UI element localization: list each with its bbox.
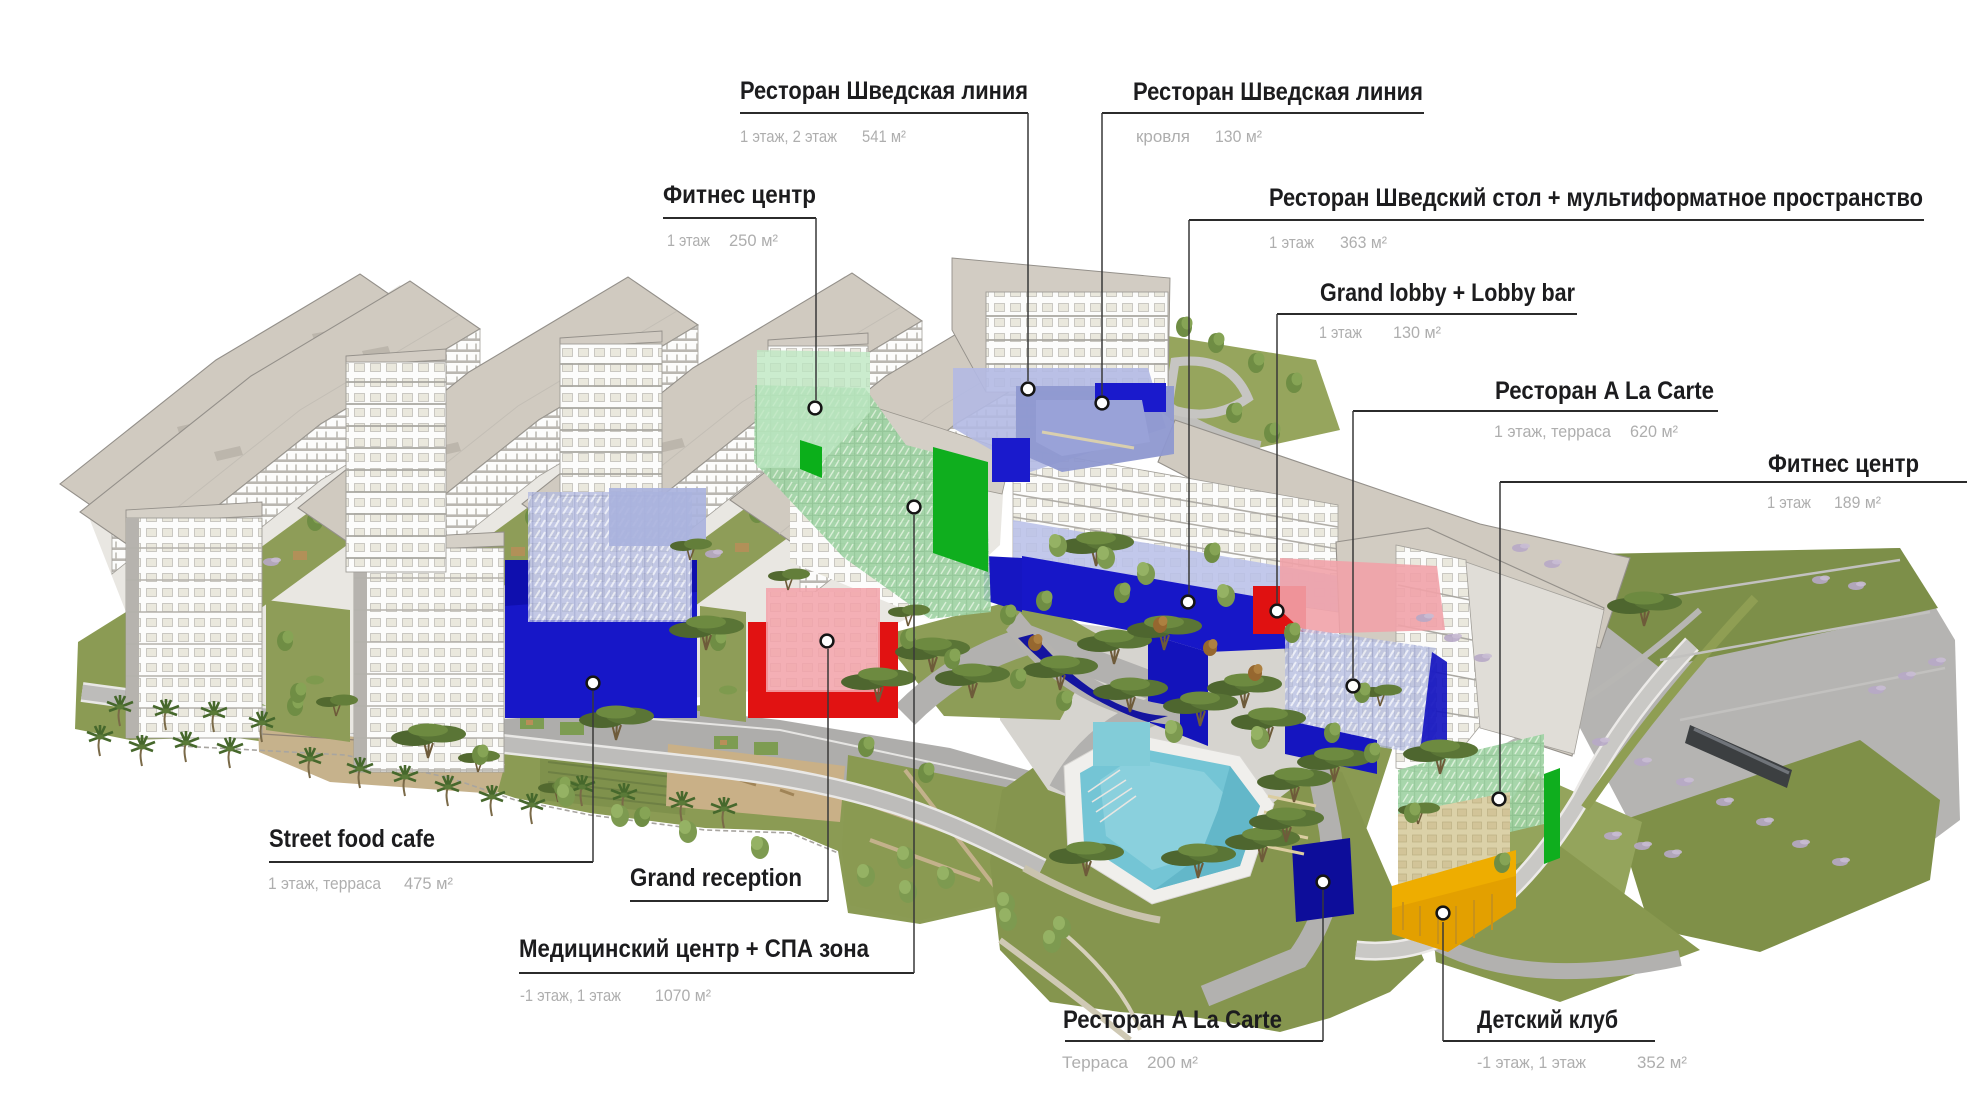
svg-text:1 этаж, терраса: 1 этаж, терраса <box>1494 423 1612 441</box>
svg-text:363 м²: 363 м² <box>1340 234 1387 252</box>
svg-text:1 этаж: 1 этаж <box>1767 494 1811 512</box>
svg-text:130 м²: 130 м² <box>1215 128 1262 146</box>
svg-text:Ресторан A La Carte: Ресторан A La Carte <box>1063 1006 1282 1034</box>
svg-text:1070 м²: 1070 м² <box>655 987 711 1005</box>
svg-text:кровля: кровля <box>1136 128 1190 146</box>
svg-text:Ресторан A La Carte: Ресторан A La Carte <box>1495 377 1714 405</box>
svg-text:Ресторан Шведская линия: Ресторан Шведская линия <box>1133 78 1423 106</box>
svg-text:Детский клуб: Детский клуб <box>1477 1006 1618 1034</box>
svg-text:-1 этаж, 1 этаж: -1 этаж, 1 этаж <box>1477 1054 1586 1072</box>
svg-text:Фитнес центр: Фитнес центр <box>663 181 816 209</box>
svg-text:620 м²: 620 м² <box>1630 423 1678 441</box>
svg-text:130 м²: 130 м² <box>1393 324 1441 342</box>
svg-text:250 м²: 250 м² <box>729 232 779 250</box>
svg-text:Ресторан Шведский стол + мульт: Ресторан Шведский стол + мультиформатное… <box>1269 184 1923 212</box>
svg-text:475 м²: 475 м² <box>404 875 454 893</box>
svg-text:Ресторан Шведская линия: Ресторан Шведская линия <box>740 77 1028 105</box>
svg-text:1 этаж: 1 этаж <box>1269 234 1314 252</box>
svg-text:200 м²: 200 м² <box>1147 1054 1199 1072</box>
svg-text:Медицинский центр + СПА зона: Медицинский центр + СПА зона <box>519 935 870 963</box>
svg-text:541 м²: 541 м² <box>862 128 906 146</box>
svg-text:1 этаж: 1 этаж <box>667 232 710 250</box>
svg-text:Терраса: Терраса <box>1062 1054 1129 1072</box>
svg-text:1 этаж, терраса: 1 этаж, терраса <box>268 875 382 893</box>
svg-text:Фитнес центр: Фитнес центр <box>1768 450 1919 478</box>
svg-text:352 м²: 352 м² <box>1637 1054 1688 1072</box>
svg-text:Grand reception: Grand reception <box>630 864 802 892</box>
svg-text:1 этаж, 2 этаж: 1 этаж, 2 этаж <box>740 128 837 146</box>
svg-text:Street food cafe: Street food cafe <box>269 825 435 853</box>
svg-text:1 этаж: 1 этаж <box>1319 324 1362 342</box>
svg-text:Grand lobby + Lobby bar: Grand lobby + Lobby bar <box>1320 279 1575 307</box>
svg-text:-1 этаж, 1 этаж: -1 этаж, 1 этаж <box>520 987 621 1005</box>
svg-text:189 м²: 189 м² <box>1834 494 1881 512</box>
